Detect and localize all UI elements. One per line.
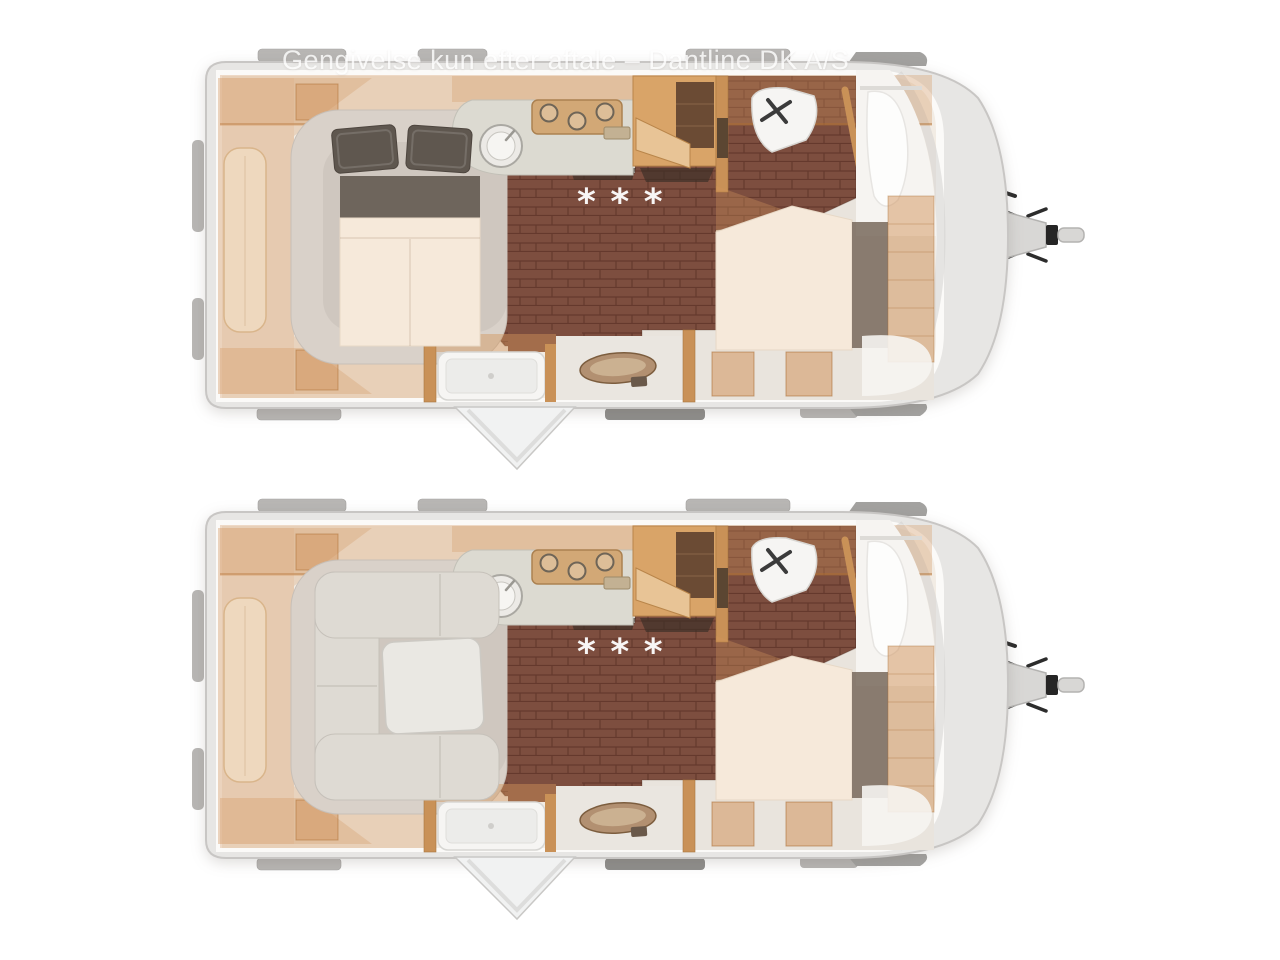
lounge-group [315, 572, 499, 800]
floorplan-sheet: Gengivelse kun efter aftale – Dantline D… [0, 0, 1280, 960]
caravan-plan-day: * * * [192, 499, 1084, 919]
dinette-table [382, 637, 485, 734]
caravan-plan-night: * * * [192, 49, 1084, 469]
floor-marking-stars: * * * [577, 182, 664, 223]
bed-headboard [340, 176, 480, 218]
floor-marking-stars: * * * [577, 632, 664, 673]
caravan-common-use [192, 49, 1084, 469]
floorplans-image: * * * * * * [0, 0, 1280, 960]
sofa-top-bench [315, 572, 499, 638]
sofa-bottom-bench [315, 734, 499, 800]
